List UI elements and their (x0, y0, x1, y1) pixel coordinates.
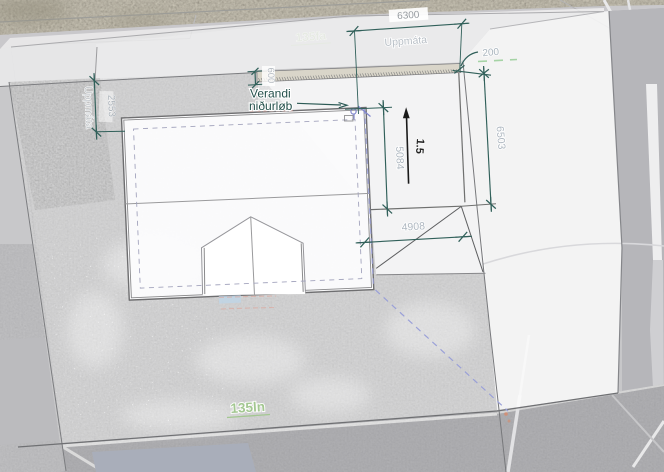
svg-text:1.5: 1.5 (413, 138, 426, 154)
svg-text:Uppmáta: Uppmáta (82, 86, 95, 129)
svg-text:4908: 4908 (401, 220, 425, 233)
svg-text:6300: 6300 (397, 10, 420, 23)
svg-text:6503: 6503 (493, 126, 507, 150)
svg-text:2553: 2553 (105, 95, 117, 118)
svg-text:135fa: 135fa (295, 28, 327, 44)
svg-text:135ln: 135ln (230, 399, 265, 416)
svg-text:600: 600 (265, 67, 277, 83)
svg-text:200: 200 (482, 47, 500, 59)
svg-text:5084: 5084 (393, 146, 406, 170)
svg-text:niðurløb: niðurløb (249, 99, 293, 113)
